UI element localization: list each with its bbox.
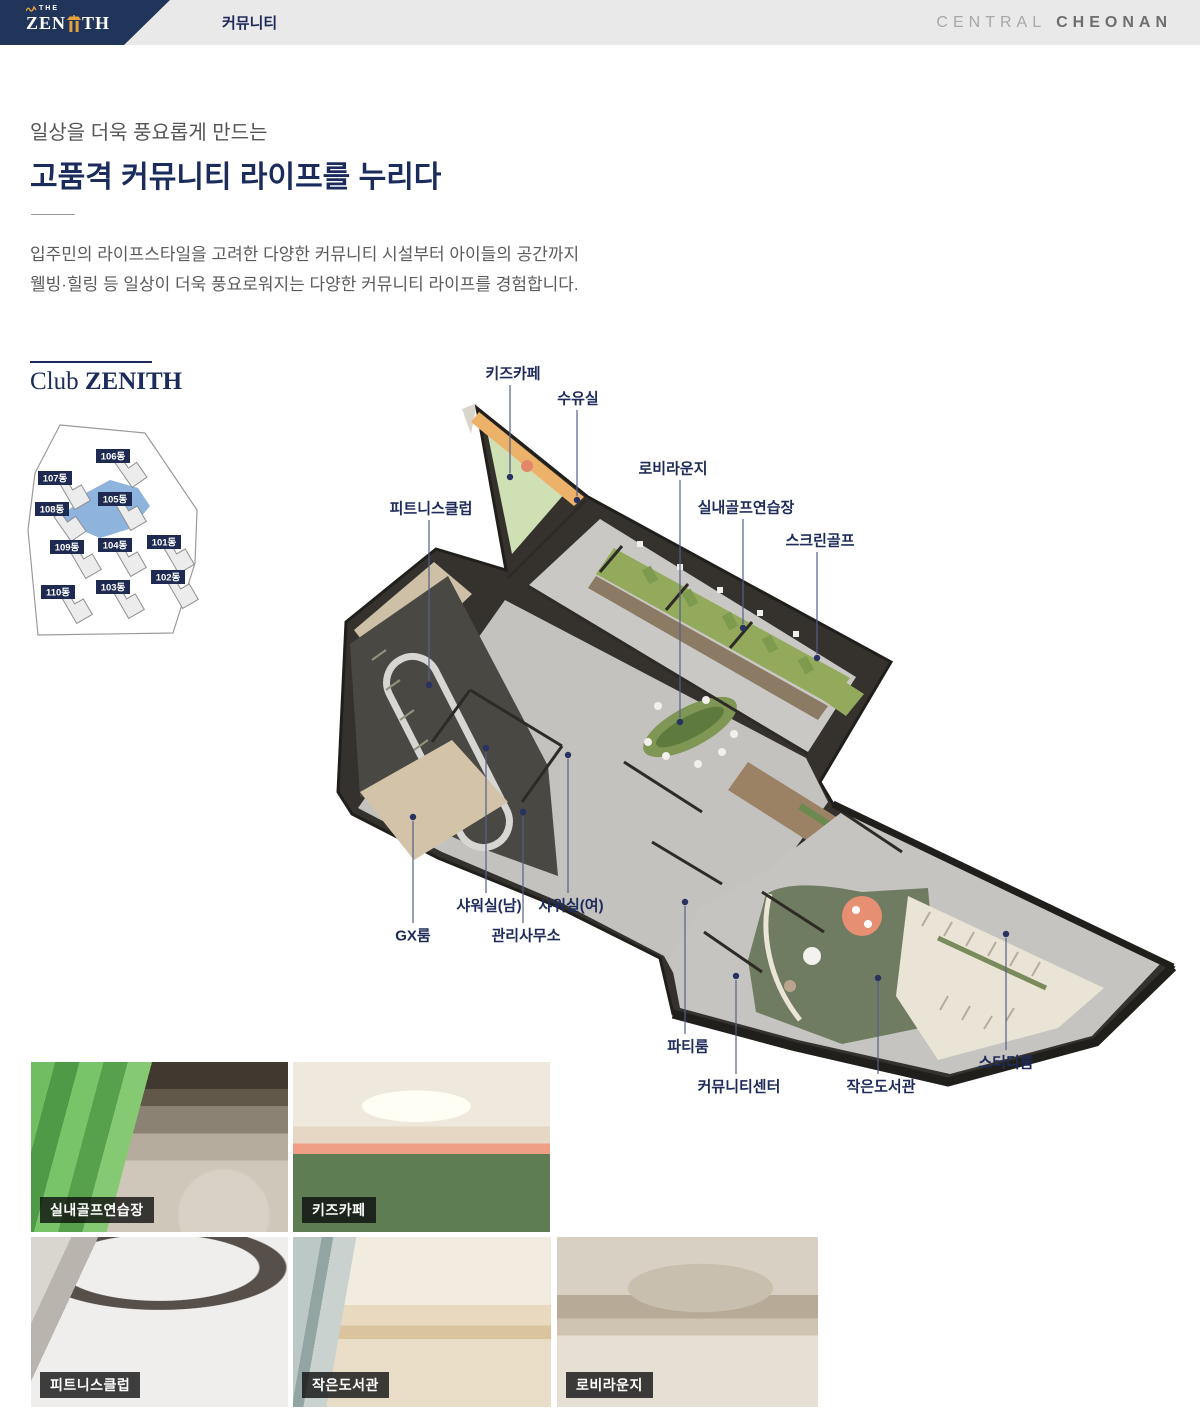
plan-label-small-library: 작은도서관 — [846, 1076, 915, 1097]
page: THE ZEN TH 커뮤니티 CENTRAL CHEONAN — [0, 0, 1200, 1425]
the-zenith-logo: THE ZEN TH — [26, 5, 110, 32]
photo-badge-small-library: 작은도서관 — [302, 1372, 389, 1398]
plan-label-kids-cafe: 키즈카페 — [485, 363, 540, 384]
intro-body-line2: 웰빙·힐링 등 일상이 더욱 풍요로워지는 다양한 커뮤니티 라이프를 경험합니… — [30, 270, 579, 300]
plan-label-community-center: 커뮤니티센터 — [698, 1076, 781, 1097]
intro-eyebrow: 일상을 더욱 풍요롭게 만드는 — [30, 116, 267, 145]
logo-area[interactable]: THE ZEN TH — [0, 0, 200, 45]
svg-text:102동: 102동 — [156, 573, 181, 584]
photo-indoor-golf-range[interactable]: 실내골프연습장 — [31, 1062, 288, 1232]
floor-plan-art — [330, 390, 1200, 1090]
plan-label-indoor-golf-range: 실내골프연습장 — [698, 497, 795, 518]
svg-text:103동: 103동 — [101, 583, 126, 594]
intro-body-line1: 입주민의 라이프스타일을 고려한 다양한 커뮤니티 시설부터 아이들의 공간까지 — [30, 240, 579, 270]
photo-fitness-club[interactable]: 피트니스클럽 — [31, 1237, 288, 1407]
photo-badge-kids-cafe: 키즈카페 — [302, 1197, 376, 1223]
plan-label-shower-men: 샤워실(남) — [456, 895, 521, 916]
photo-badge-lobby-lounge: 로비라운지 — [566, 1372, 653, 1398]
club-word: Club — [30, 368, 85, 395]
site-map: 106동107동105동108동109동104동101동102동103동110동 — [20, 418, 225, 643]
svg-text:107동: 107동 — [43, 474, 68, 485]
svg-text:104동: 104동 — [103, 541, 128, 552]
page-title: 고품격 커뮤니티 라이프를 누리다 — [30, 152, 441, 196]
floor-plan — [330, 390, 1200, 1090]
svg-text:110동: 110동 — [46, 588, 70, 599]
logo-th: TH — [82, 14, 110, 32]
logo-zen: ZEN — [26, 14, 66, 32]
zenith-gate-icon — [67, 15, 81, 32]
zenith-word: ZENITH — [85, 368, 182, 395]
svg-text:106동: 106동 — [101, 452, 126, 463]
logo-the: THE — [39, 5, 59, 12]
plan-label-fitness-club: 피트니스클럽 — [390, 498, 473, 519]
plan-label-study-room: 스터디룸 — [978, 1052, 1033, 1073]
svg-text:105동: 105동 — [103, 495, 128, 506]
svg-text:108동: 108동 — [40, 505, 65, 516]
svg-text:109동: 109동 — [55, 543, 80, 554]
logo-crown-icon — [26, 6, 37, 12]
plan-label-screen-golf: 스크린골프 — [785, 530, 854, 551]
club-overline — [30, 361, 152, 363]
tab-community[interactable]: 커뮤니티 — [222, 0, 277, 45]
brand-bold: CHEONAN — [1056, 14, 1172, 32]
svg-text:101동: 101동 — [152, 538, 177, 549]
photo-badge-indoor-golf-range: 실내골프연습장 — [40, 1197, 154, 1223]
brand-light: CENTRAL — [936, 14, 1046, 32]
plan-label-lobby-lounge: 로비라운지 — [638, 458, 707, 479]
photo-kids-cafe[interactable]: 키즈카페 — [293, 1062, 550, 1232]
brand-central-cheonan: CENTRAL CHEONAN — [936, 0, 1172, 45]
club-zenith-title: Club ZENITH — [30, 368, 182, 396]
plan-label-nursing-room: 수유실 — [557, 388, 598, 409]
photo-badge-fitness-club: 피트니스클럽 — [40, 1372, 140, 1398]
plan-label-gx-room: GX룸 — [395, 925, 430, 946]
intro-body: 입주민의 라이프스타일을 고려한 다양한 커뮤니티 시설부터 아이들의 공간까지… — [30, 240, 579, 300]
header: THE ZEN TH 커뮤니티 CENTRAL CHEONAN — [0, 0, 1200, 45]
plan-label-shower-women: 샤워실(여) — [538, 895, 603, 916]
plan-label-management-office: 관리사무소 — [491, 925, 560, 946]
photo-small-library[interactable]: 작은도서관 — [293, 1237, 551, 1407]
photo-lobby-lounge[interactable]: 로비라운지 — [557, 1237, 818, 1407]
plan-label-party-room: 파티룸 — [667, 1036, 708, 1057]
title-divider — [31, 214, 75, 215]
